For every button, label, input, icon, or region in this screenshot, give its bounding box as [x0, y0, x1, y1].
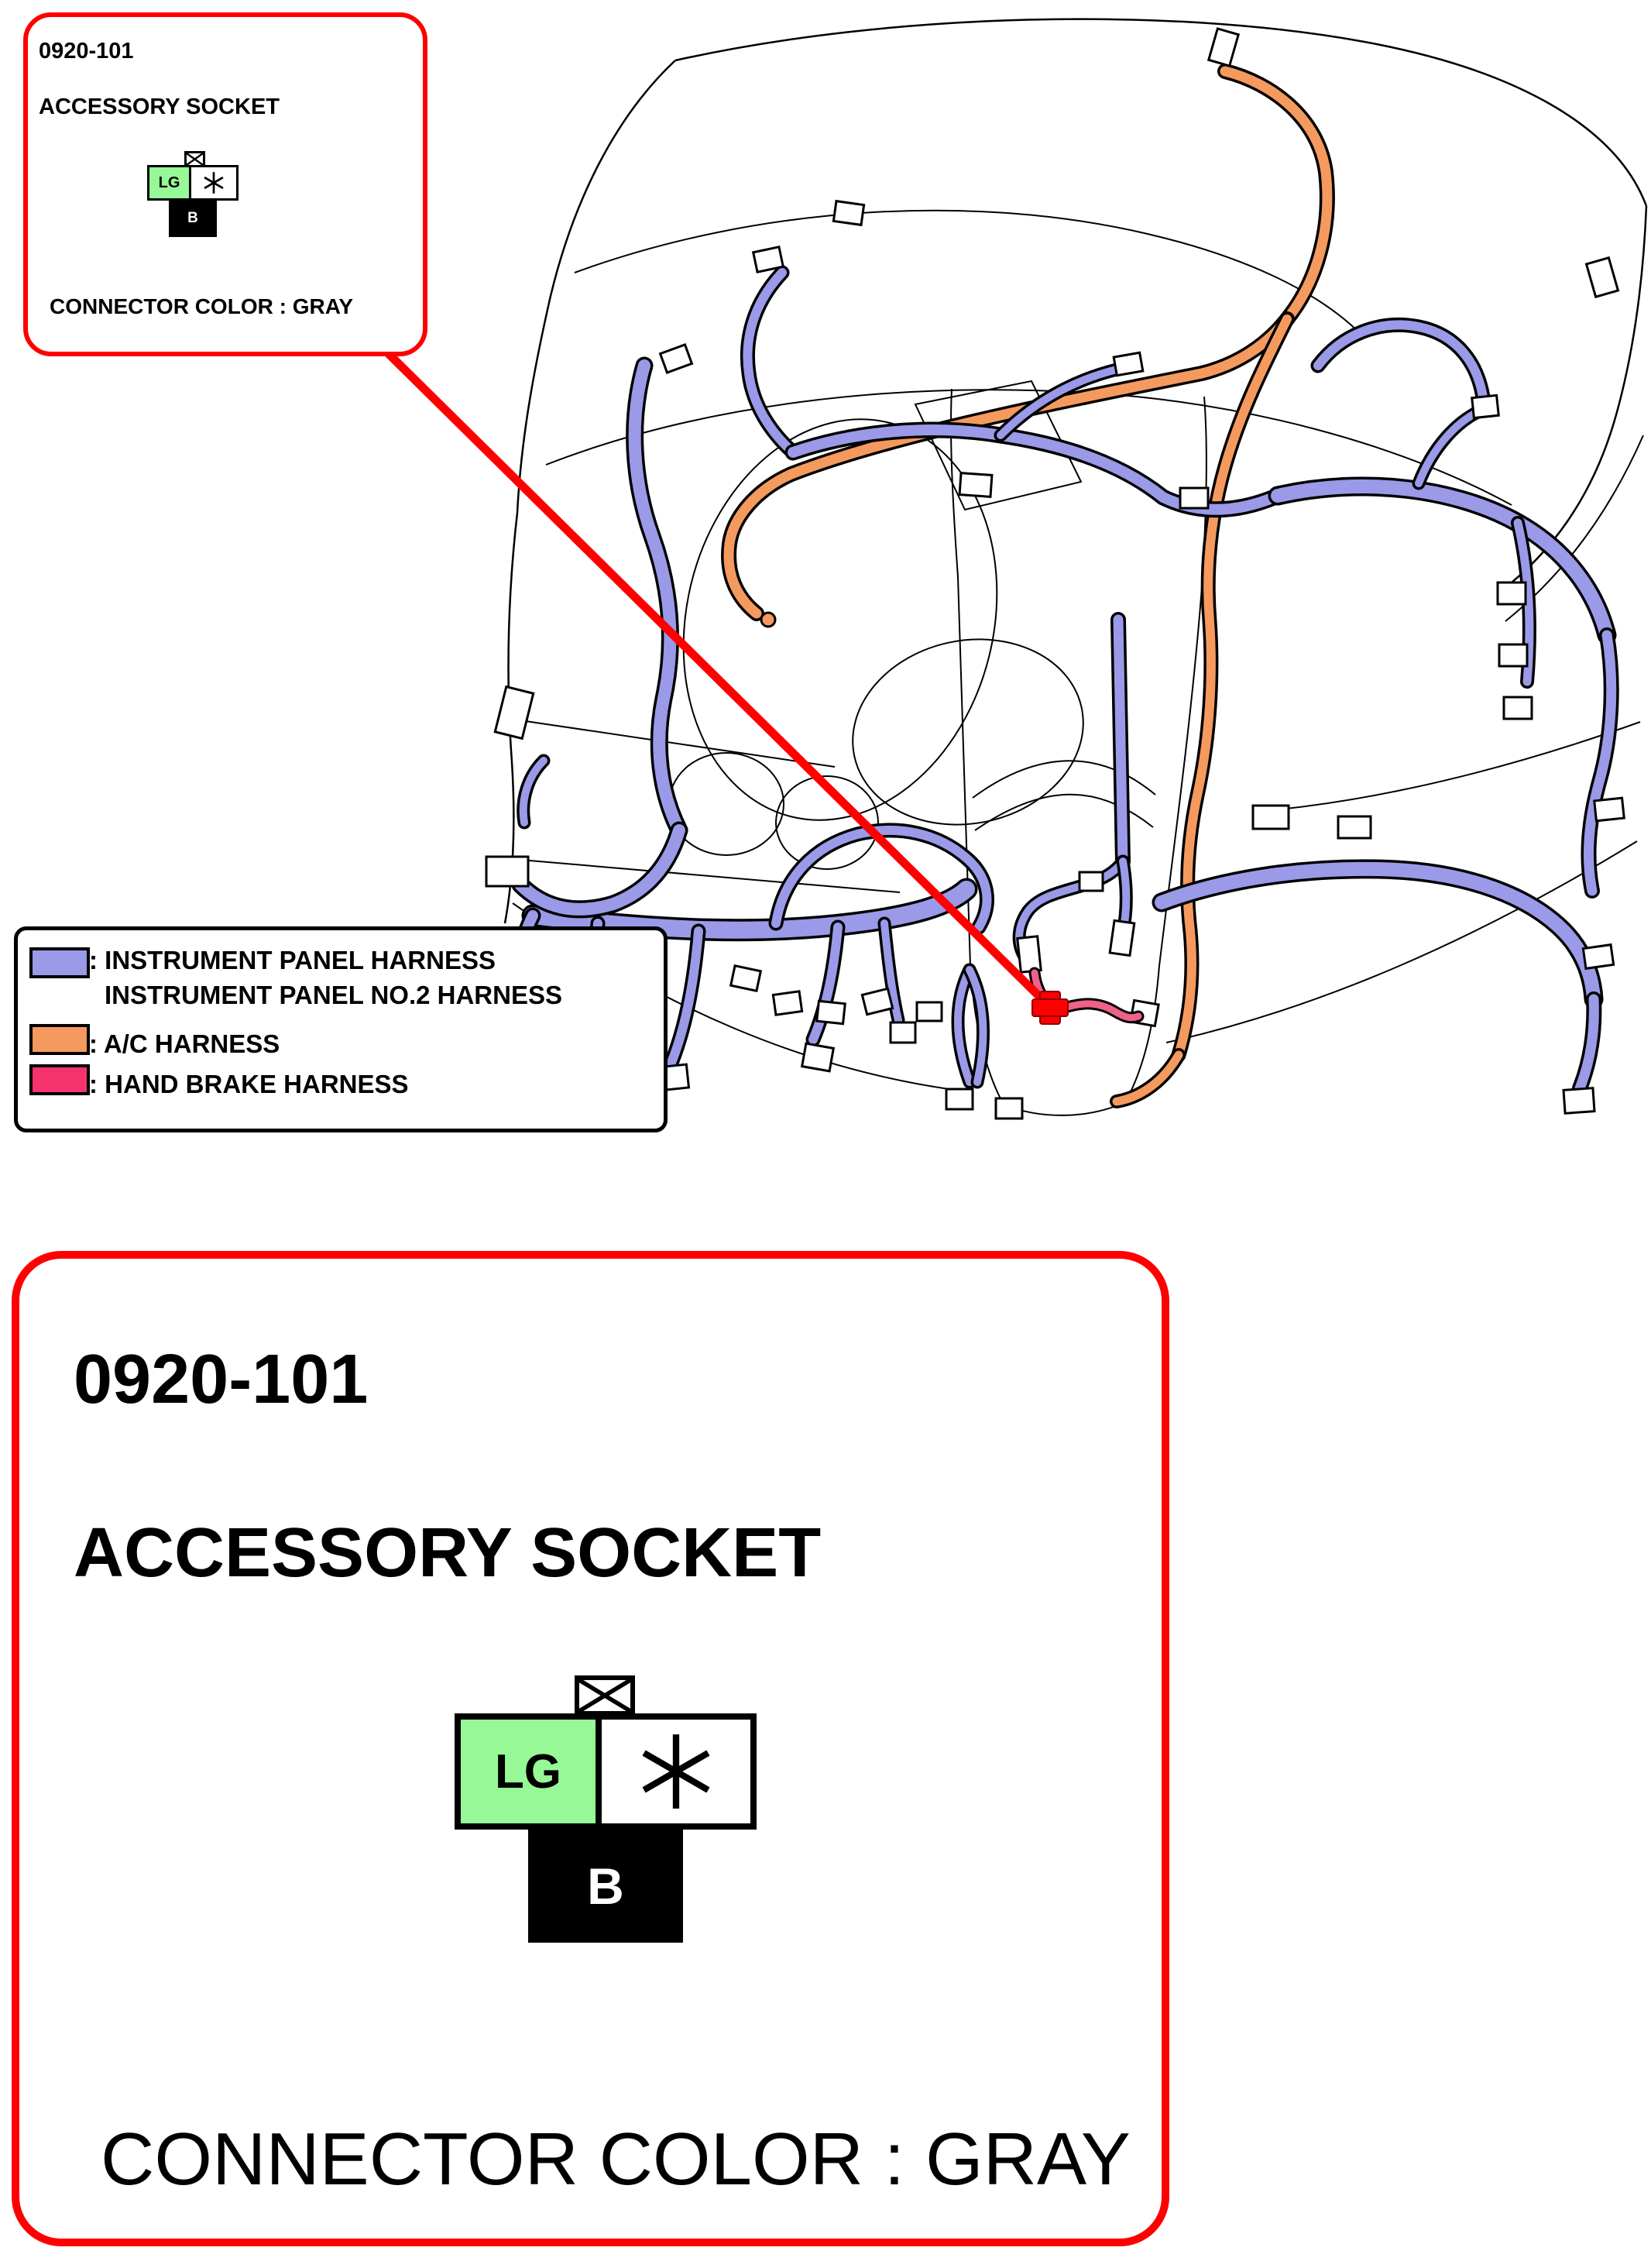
- legend-label-hand-brake: : HAND BRAKE HARNESS: [89, 1067, 409, 1101]
- callout-leader-line: [387, 352, 1055, 1012]
- pin-cell-b-large: B: [528, 1830, 683, 1943]
- crossed-box-icon: [575, 1675, 635, 1716]
- legend-label-instrument-panel: : INSTRUMENT PANEL HARNESS INSTRUMENT PA…: [89, 943, 562, 1012]
- legend-swatch-hand-brake: [29, 1064, 90, 1095]
- pin-cell-b: B: [169, 200, 217, 237]
- pin-cell-lg: LG: [149, 167, 191, 198]
- asterisk-icon: [636, 1731, 716, 1812]
- connector-code-and-name-large: 0920-101 ACCESSORY SOCKET: [74, 1336, 821, 1596]
- connector-color-note: CONNECTOR COLOR : GRAY: [50, 294, 353, 319]
- instrument-panel-harness: [515, 273, 1612, 1088]
- asterisk-icon: [202, 171, 225, 194]
- connector-name: ACCESSORY SOCKET: [39, 94, 280, 119]
- connector-color-note-large: CONNECTOR COLOR : GRAY: [101, 2117, 1131, 2202]
- pin-cell-asterisk-large: [602, 1720, 750, 1823]
- pin-cell-asterisk: [191, 167, 236, 198]
- connector-code-large: 0920-101: [74, 1341, 368, 1418]
- connector-code-and-name: 0920-101 ACCESSORY SOCKET: [39, 37, 280, 121]
- wiring-diagram-page: 0920-101 ACCESSORY SOCKET LG B CONNECTO: [0, 0, 1651, 2268]
- connector-name-large: ACCESSORY SOCKET: [74, 1514, 821, 1592]
- connector-code: 0920-101: [39, 39, 134, 64]
- connector-pin-row: LG: [147, 165, 239, 201]
- connector-callout-small: 0920-101 ACCESSORY SOCKET LG B CONNECTO: [23, 12, 427, 356]
- connector-pin-row-large: LG: [455, 1713, 757, 1830]
- legend-swatch-ac: [29, 1024, 90, 1055]
- dashboard-outline: [505, 19, 1646, 1115]
- harness-legend: : INSTRUMENT PANEL HARNESS INSTRUMENT PA…: [14, 926, 668, 1132]
- connector-callout-large: 0920-101 ACCESSORY SOCKET LG B CONNECTO: [12, 1251, 1169, 2246]
- legend-swatch-instrument-panel: [29, 947, 90, 978]
- pin-cell-lg-large: LG: [461, 1720, 602, 1823]
- legend-label-ac: : A/C HARNESS: [89, 1026, 280, 1061]
